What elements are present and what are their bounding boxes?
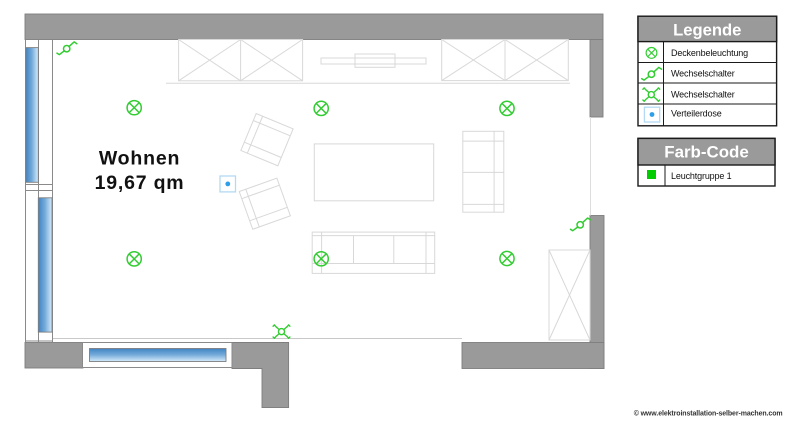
svg-text:Deckenbeleuchtung: Deckenbeleuchtung bbox=[671, 48, 748, 58]
svg-text:© www.elektroinstallation-selb: © www.elektroinstallation-selber-machen.… bbox=[634, 409, 783, 417]
svg-text:Wechselschalter: Wechselschalter bbox=[671, 69, 735, 79]
svg-text:19,67 qm: 19,67 qm bbox=[95, 172, 185, 194]
svg-text:Farb-Code: Farb-Code bbox=[664, 142, 748, 161]
svg-text:Wechselschalter: Wechselschalter bbox=[671, 89, 735, 99]
svg-text:Verteilerdose: Verteilerdose bbox=[671, 109, 722, 119]
svg-text:Wohnen: Wohnen bbox=[99, 148, 180, 170]
svg-text:Legende: Legende bbox=[673, 21, 741, 40]
svg-text:Leuchtgruppe 1: Leuchtgruppe 1 bbox=[671, 171, 732, 181]
